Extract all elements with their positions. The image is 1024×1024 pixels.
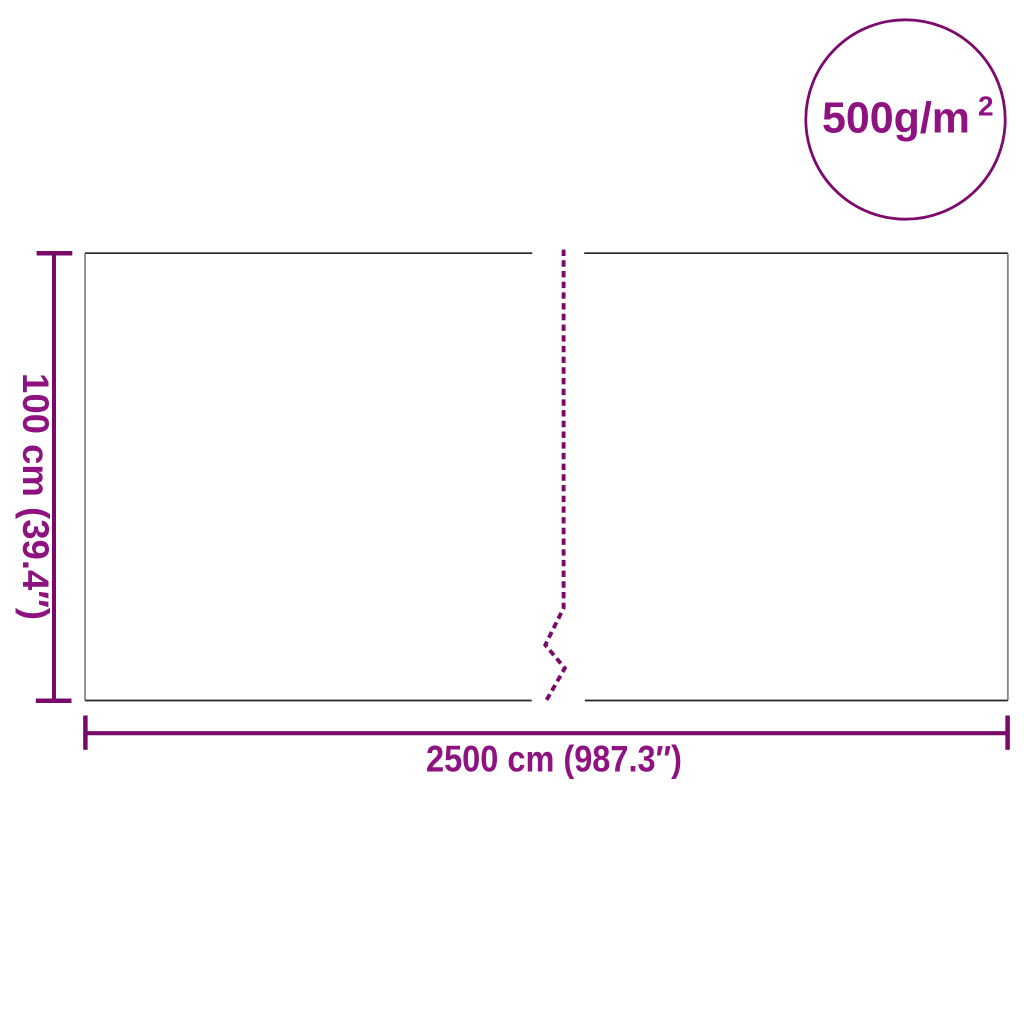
svg-text:100 cm (39.4″): 100 cm (39.4″) (15, 373, 56, 620)
svg-text:2500 cm (987.3″): 2500 cm (987.3″) (426, 739, 682, 780)
svg-text:500g/m: 500g/m (822, 94, 970, 143)
svg-text:2: 2 (978, 91, 994, 122)
